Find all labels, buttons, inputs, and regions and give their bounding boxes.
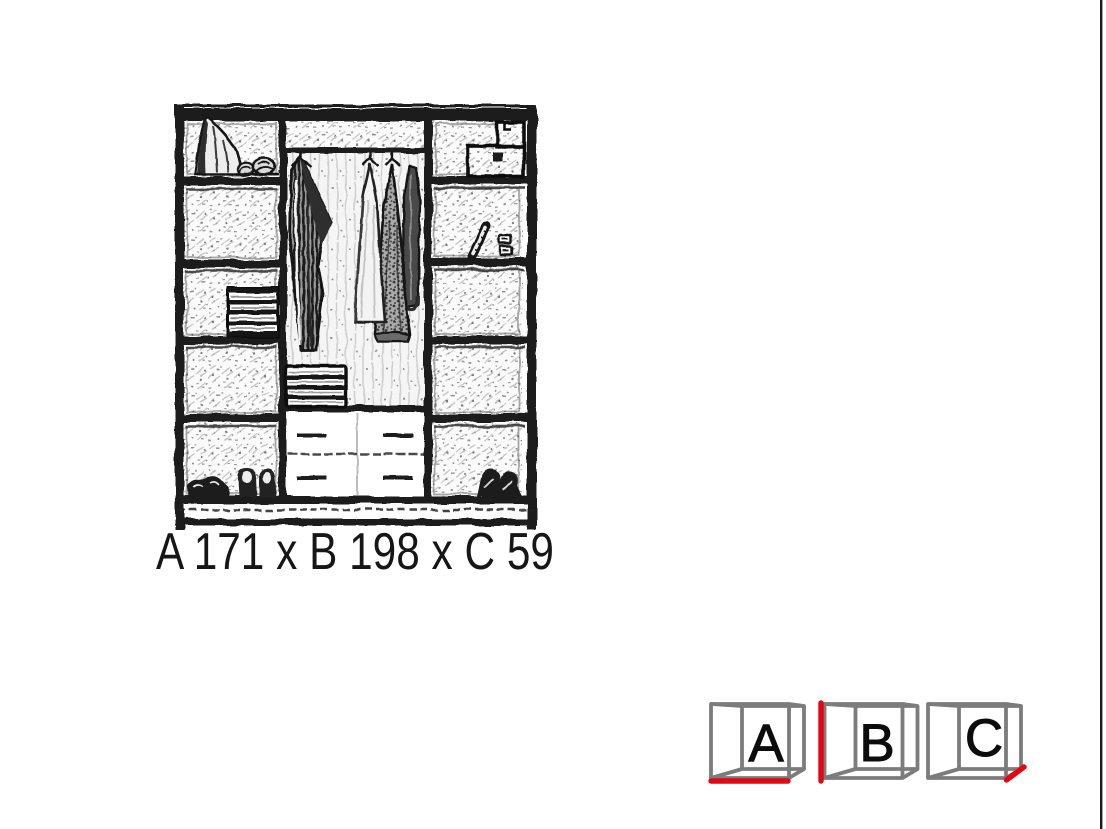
svg-text:A 171 x B 198 x C 59: A 171 x B 198 x C 59 <box>156 523 554 581</box>
svg-text:A: A <box>748 714 784 773</box>
svg-text:B: B <box>859 714 894 773</box>
svg-text:C: C <box>965 709 1003 768</box>
